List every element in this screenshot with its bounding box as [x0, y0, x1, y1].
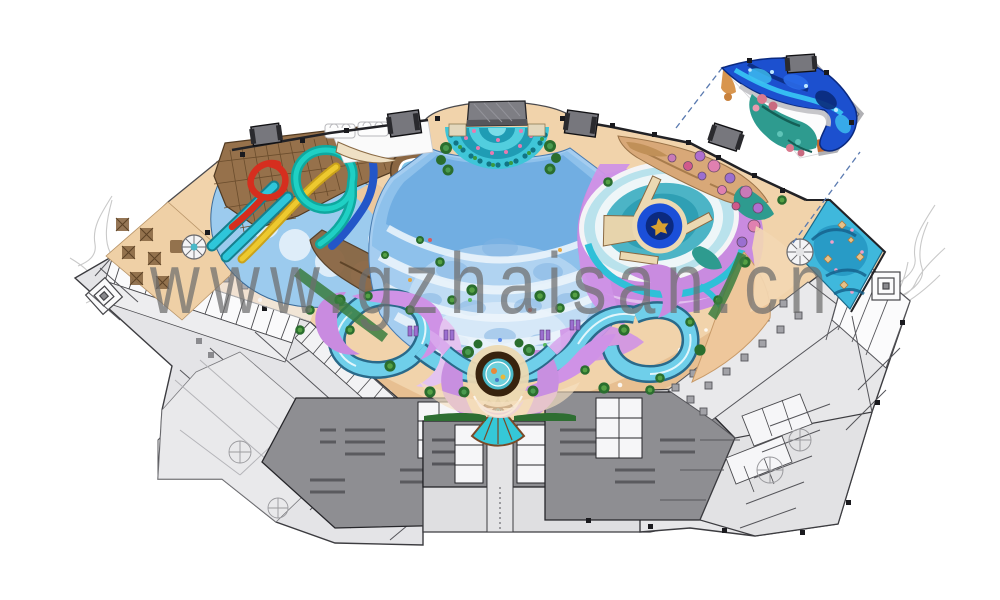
svg-text:www.gzhaisan.cn: www.gzhaisan.cn	[149, 236, 837, 332]
